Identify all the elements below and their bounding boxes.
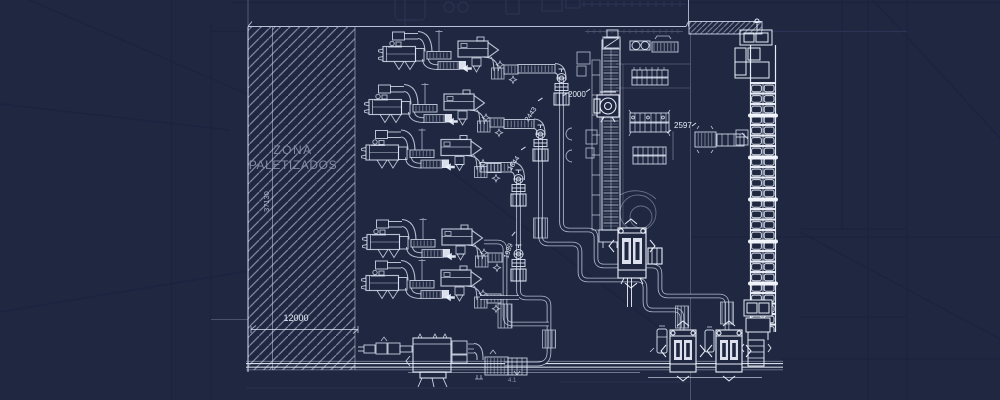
svg-text:ZONA: ZONA: [273, 143, 312, 157]
svg-text:2000: 2000: [568, 90, 586, 99]
svg-text:12000: 12000: [283, 313, 308, 323]
svg-text:4.1: 4.1: [508, 378, 517, 384]
svg-text:PALETIZADOS: PALETIZADOS: [249, 158, 337, 172]
svg-text:2597: 2597: [674, 121, 692, 130]
svg-text:37130: 37130: [262, 191, 271, 212]
